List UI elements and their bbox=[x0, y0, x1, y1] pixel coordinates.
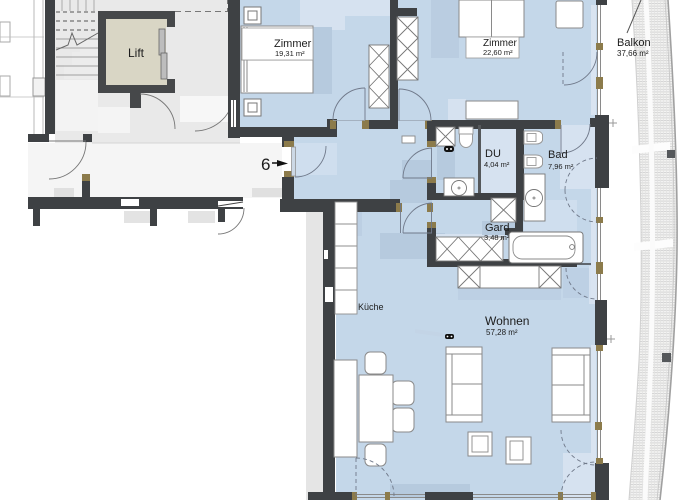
svg-text:Bad: Bad bbox=[548, 149, 568, 161]
svg-text:57,28 m²: 57,28 m² bbox=[486, 328, 518, 337]
svg-text:6: 6 bbox=[261, 155, 270, 174]
svg-text:Wohnen: Wohnen bbox=[485, 314, 529, 328]
svg-text:Küche: Küche bbox=[358, 302, 384, 312]
svg-text:DU: DU bbox=[485, 148, 501, 160]
svg-text:7,96 m²: 7,96 m² bbox=[548, 162, 574, 171]
svg-text:3,48 m²: 3,48 m² bbox=[484, 233, 510, 242]
svg-text:Lift: Lift bbox=[128, 46, 145, 60]
svg-text:22,60 m²: 22,60 m² bbox=[483, 48, 513, 57]
svg-text:Balkon: Balkon bbox=[617, 37, 651, 49]
svg-text:37,66 m²: 37,66 m² bbox=[617, 49, 649, 58]
svg-text:4,04 m²: 4,04 m² bbox=[484, 160, 510, 169]
svg-text:19,31 m²: 19,31 m² bbox=[275, 49, 305, 58]
